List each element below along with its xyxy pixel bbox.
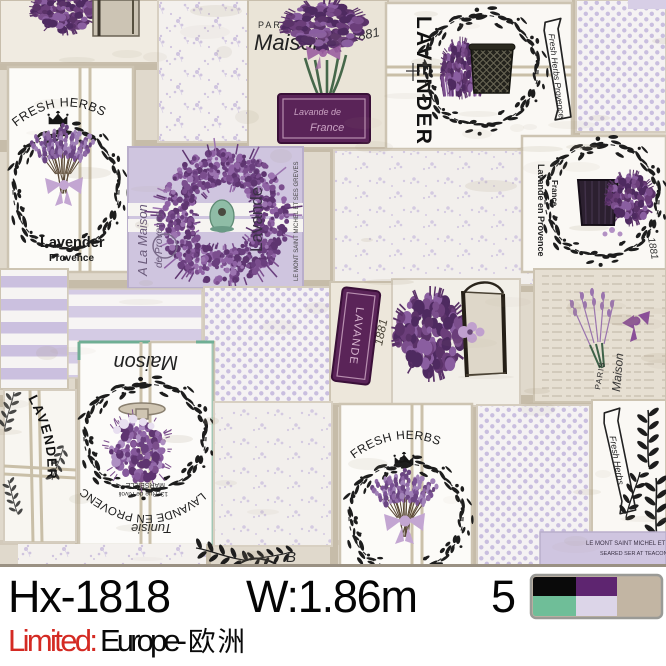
svg-text:Maison: Maison [114,351,178,373]
svg-text:Hx-1818: Hx-1818 [8,571,171,622]
svg-text:B: B [286,549,296,566]
svg-text:Europe-: Europe- [100,623,187,658]
svg-text:W:1.86m: W:1.86m [246,571,418,622]
svg-text:SEARED SER AT TEACON LADES EAS: SEARED SER AT TEACON LADES EAST [600,551,666,557]
svg-text:Lavender: Lavender [40,235,105,251]
svg-text:MARSEILLE: MARSEILLE [125,481,165,488]
svg-text:5: 5 [491,571,516,622]
svg-text:Lavande: Lavande [247,187,266,252]
svg-text:A La Maison: A La Maison [135,204,150,277]
svg-text:France: France [550,180,559,207]
svg-text:Lavande en Provence: Lavande en Provence [536,164,546,257]
svg-text:France: France [310,122,344,134]
svg-text:Limited:: Limited: [8,623,98,658]
svg-text:Lavande de: Lavande de [294,107,341,117]
svg-text:13, Rue de Rivoli: 13, Rue de Rivoli [119,490,169,497]
svg-text:de Provence: de Provence [154,211,165,268]
svg-text:Provence: Provence [49,253,94,264]
svg-text:LE MONT SAINT MICHEL ET SES GR: LE MONT SAINT MICHEL ET SES GREVES [294,162,300,281]
